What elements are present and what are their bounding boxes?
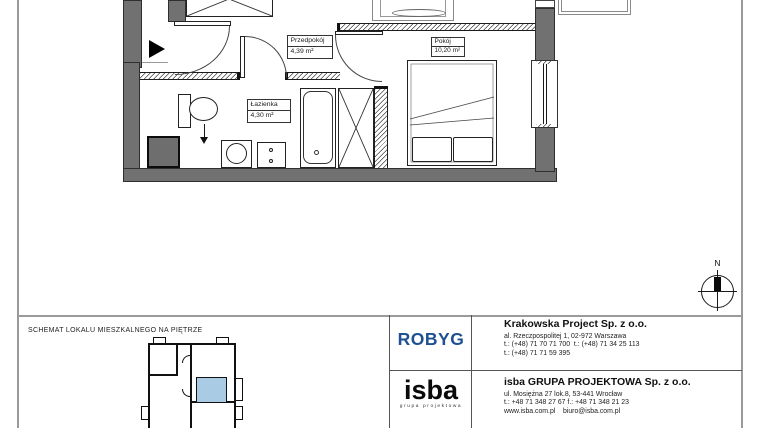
developer-phones: t.: (+48) 71 70 71 700 t.: (+48) 71 34 2… [504,341,739,350]
shaft-cross-icon [339,89,373,167]
keyplan-wall [150,374,178,376]
cabinet-knob-icon [269,148,273,152]
wardrobe [186,0,273,17]
window-top-frame [535,0,555,8]
shower-unit [147,136,180,168]
bathtub-drain-icon [314,150,319,155]
wall-bath-top-right [285,72,340,80]
keyplan-wall [176,345,178,376]
bathroom-door-arc [245,36,287,78]
keyplan-highlighted-unit [196,377,227,403]
studio-web: www.isba.com.pl biuro@isba.com.pl [504,408,739,417]
isba-logo-subtext: grupa projektowa [392,404,470,409]
title-block-divider-v2 [471,315,472,428]
studio-phones: t.: +48 71 348 27 67 f.: +48 71 348 21 2… [504,399,739,408]
compass-needle-icon [714,277,721,291]
window-end-tick [536,124,552,127]
bed-pillow [412,137,452,162]
shaft-box [338,88,374,168]
room-label-pokoj: Pokój 10,20 m² [431,37,465,57]
wall-hall-top [337,23,535,31]
studio-info: isba GRUPA PROJEKTOWA Sp. z o.o. ul. Mos… [504,376,739,426]
developer-company-name: Krakowska Project Sp. z o.o. [504,318,739,330]
wall-bottom [123,168,557,182]
developer-address: al. Rzeczpospolitej 1, 02-972 Warszawa [504,333,739,342]
isba-logo: isba grupa projektowa [392,377,470,422]
key-plan [0,315,389,428]
wall-room-divider [374,86,388,168]
entrance-door-arc [175,26,230,75]
bed-pillow [453,137,493,162]
toilet-arrow-line [204,124,205,137]
entrance-arrow-icon [149,40,165,58]
window-glass-line [546,64,547,124]
developer-phone2: t.: (+48) 71 71 59 395 [504,350,739,359]
wall-right-upper [535,8,555,62]
room-area: 4,39 m² [287,47,333,59]
title-block-divider-v1 [389,315,390,428]
room-area: 10,20 m² [431,47,465,57]
wall-entry-jamb [168,0,186,22]
wall-left [123,62,140,182]
down-arrow-icon [200,137,208,144]
wardrobe-lines [187,0,272,16]
room-label-przedpokoj: Przedpokój 4,39 m² [287,35,333,59]
room-name: Pokój [431,37,465,47]
window-right [531,60,558,128]
balcony-table [392,9,446,17]
toilet-bowl [189,97,218,121]
compass-north-label: N [711,258,724,268]
room-name: Przedpokój [287,35,333,47]
room-label-lazienka: Łazienka 4,30 m² [247,99,291,123]
robyg-logo: ROBYG [392,327,470,351]
developer-info: Krakowska Project Sp. z o.o. al. Rzeczpo… [504,318,739,368]
wall-right-lower [535,126,555,172]
drawing-sheet: Przedpokój 4,39 m² Pokój 10,20 m² Łazien… [0,0,760,428]
wall-entry-left [123,0,142,68]
room-name: Łazienka [247,99,291,111]
title-block-divider-h [389,370,742,371]
studio-address: ul. Mosiężna 27 lok.8, 53-441 Wrocław [504,391,739,400]
window-glass-line [543,64,544,124]
cabinet-knob-icon [269,159,273,163]
isba-logo-text: isba [392,377,470,403]
wall-bath-top-left [140,72,240,80]
keyplan-wall [190,345,192,428]
room-area: 4,30 m² [247,111,291,123]
sink-cabinet [257,142,286,168]
title-block: SCHEMAT LOKALU MIESZKALNEGO NA PIĘTRZE R… [0,315,760,428]
room-door-arc [335,35,382,82]
floor-plan: Przedpokój 4,39 m² Pokój 10,20 m² Łazien… [0,0,760,315]
window-end-tick [536,61,552,64]
balcony-right-inner [561,0,628,12]
studio-company-name: isba GRUPA PROJEKTOWA Sp. z o.o. [504,376,739,388]
entry-niche-line [142,62,168,63]
washing-machine-drum-icon [226,143,247,164]
